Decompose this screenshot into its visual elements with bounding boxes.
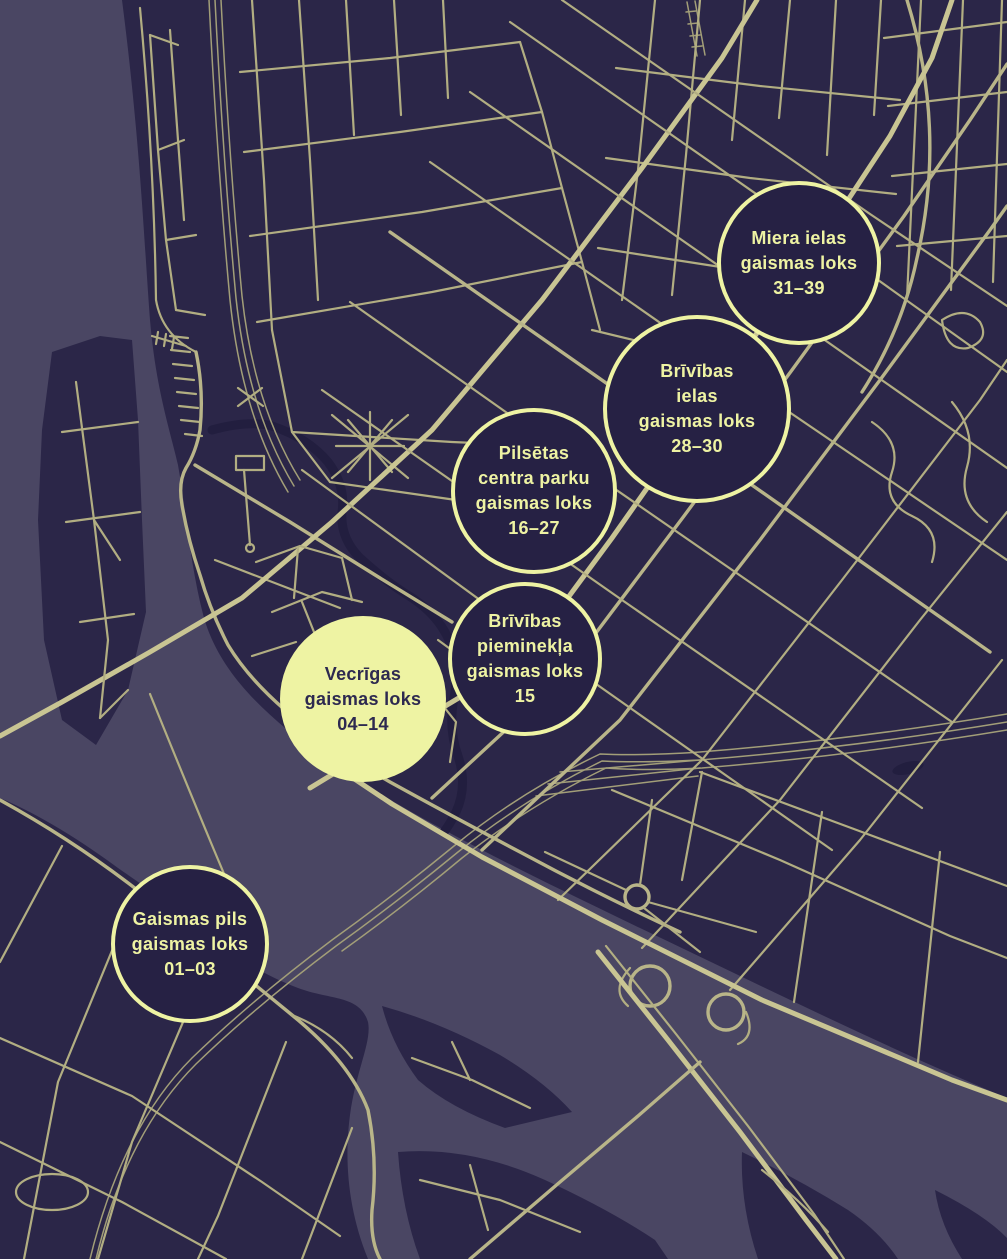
marker-label-line: 28–30 — [671, 434, 723, 459]
marker-miera-ielas[interactable]: Miera ielas gaismas loks 31–39 — [717, 181, 881, 345]
marker-label-line: ielas — [676, 384, 718, 409]
east-paths — [872, 402, 987, 562]
marker-brivibas-ielas[interactable]: Brīvības ielas gaismas loks 28–30 — [603, 315, 791, 503]
marker-label-line: Vecrīgas — [325, 662, 401, 687]
marker-label-line: 31–39 — [773, 276, 825, 301]
marker-label-line: 15 — [515, 684, 536, 709]
marker-label-line: gaismas loks — [467, 659, 584, 684]
marker-label-line: gaismas loks — [639, 409, 756, 434]
marker-label-line: 16–27 — [508, 516, 560, 541]
marker-label-line: gaismas loks — [132, 932, 249, 957]
marker-label-line: Pilsētas — [499, 441, 569, 466]
marker-label-line: Gaismas pils — [133, 907, 248, 932]
marker-label-line: Brīvības — [488, 609, 561, 634]
marker-label-line: gaismas loks — [476, 491, 593, 516]
marker-label-line: pieminekļa — [477, 634, 573, 659]
marker-brivibas-pieminekla[interactable]: Brīvības pieminekļa gaismas loks 15 — [448, 582, 602, 736]
riga-light-festival-map: Miera ielas gaismas loks 31–39 Brīvības … — [0, 0, 1007, 1259]
marker-label-line: centra parku — [478, 466, 590, 491]
marker-gaismas-pils[interactable]: Gaismas pils gaismas loks 01–03 — [111, 865, 269, 1023]
marker-label-line: gaismas loks — [741, 251, 858, 276]
marker-label-line: 01–03 — [164, 957, 216, 982]
marker-label-line: Brīvības — [660, 359, 733, 384]
marker-label-line: Miera ielas — [751, 226, 846, 251]
marker-label-line: gaismas loks — [305, 687, 422, 712]
marker-label-line: 04–14 — [337, 712, 389, 737]
marker-pilsetas-centra-parku[interactable]: Pilsētas centra parku gaismas loks 16–27 — [451, 408, 617, 574]
marker-vecrigas[interactable]: Vecrīgas gaismas loks 04–14 — [280, 616, 446, 782]
